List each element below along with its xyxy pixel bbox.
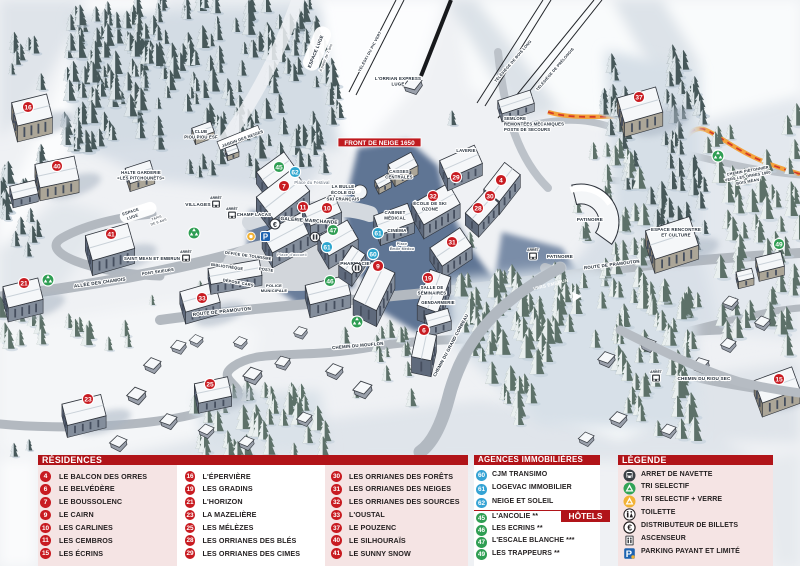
svg-text:Place d'accueil: Place d'accueil xyxy=(277,252,307,257)
svg-text:FRONT DE NEIGE 1650: FRONT DE NEIGE 1650 xyxy=(344,140,415,147)
svg-text:41: 41 xyxy=(107,231,115,238)
svg-text:31: 31 xyxy=(448,239,456,246)
svg-text:REMONTÉES MÉCANIQUES: REMONTÉES MÉCANIQUES xyxy=(504,121,564,126)
svg-text:25: 25 xyxy=(206,381,214,388)
svg-text:VILLAGES: VILLAGES xyxy=(185,202,211,208)
svg-text:32: 32 xyxy=(429,193,437,200)
svg-text:61: 61 xyxy=(374,230,382,237)
svg-text:SEMLORE: SEMLORE xyxy=(504,116,526,121)
svg-text:SÉMINAIRES: SÉMINAIRES xyxy=(418,291,447,296)
svg-text:MÉDICAL: MÉDICAL xyxy=(384,216,406,221)
svg-text:CINÉMA: CINÉMA xyxy=(387,226,407,233)
svg-text:16: 16 xyxy=(24,104,32,111)
svg-text:ARRÊT: ARRÊT xyxy=(180,249,193,254)
svg-text:PIOU PIOU ESF: PIOU PIOU ESF xyxy=(184,134,218,139)
svg-text:PATINOIRE: PATINOIRE xyxy=(577,217,603,222)
svg-text:Place: Place xyxy=(397,242,407,246)
svg-text:7: 7 xyxy=(282,183,286,190)
svg-text:CAISSES: CAISSES xyxy=(389,169,409,174)
svg-text:30: 30 xyxy=(486,193,494,200)
svg-text:15: 15 xyxy=(775,376,783,383)
svg-text:23: 23 xyxy=(84,396,92,403)
svg-text:47: 47 xyxy=(329,227,337,234)
svg-text:62: 62 xyxy=(291,169,299,176)
svg-text:Émile Médou: Émile Médou xyxy=(390,246,414,251)
svg-text:ÉCOLE DE SKI: ÉCOLE DE SKI xyxy=(413,201,446,206)
svg-text:CHEMIN DU RIOU SEC: CHEMIN DU RIOU SEC xyxy=(677,376,731,381)
svg-text:60: 60 xyxy=(369,251,377,258)
svg-text:49: 49 xyxy=(775,241,783,248)
svg-text:ÉCOLE DU: ÉCOLE DU xyxy=(331,190,355,195)
svg-text:ESPACE RENCONTRE: ESPACE RENCONTRE xyxy=(651,227,701,232)
svg-text:33: 33 xyxy=(198,295,206,302)
svg-text:ARRÊT: ARRÊT xyxy=(210,195,223,200)
svg-text:CLUB: CLUB xyxy=(195,129,207,134)
svg-text:29: 29 xyxy=(452,174,460,181)
svg-text:P: P xyxy=(625,548,631,559)
svg-text:SAINT MEAN ET EMBRUN: SAINT MEAN ET EMBRUN xyxy=(124,256,180,261)
svg-text:ARRÊT: ARRÊT xyxy=(527,247,540,252)
svg-text:SALLE DE: SALLE DE xyxy=(421,285,444,290)
svg-text:Place du Festival: Place du Festival xyxy=(294,180,329,185)
svg-text:LA BULLE: LA BULLE xyxy=(332,184,355,189)
svg-text:LUGE: LUGE xyxy=(392,82,405,87)
svg-text:45: 45 xyxy=(275,164,283,171)
svg-text:SKI FRANÇAIS: SKI FRANÇAIS xyxy=(327,196,360,201)
svg-text:40: 40 xyxy=(53,163,61,170)
svg-text:ARRÊT: ARRÊT xyxy=(226,206,239,211)
svg-text:28: 28 xyxy=(474,205,482,212)
svg-text:MUNICIPALE: MUNICIPALE xyxy=(261,288,288,293)
svg-text:PATINOIRE: PATINOIRE xyxy=(547,254,573,259)
svg-text:CABINET: CABINET xyxy=(385,210,406,215)
svg-text:€: € xyxy=(627,522,632,532)
svg-text:OZONE: OZONE xyxy=(422,207,439,212)
svg-text:POSTE DE SECOURS: POSTE DE SECOURS xyxy=(504,127,550,132)
svg-text:4: 4 xyxy=(499,177,503,184)
svg-text:37: 37 xyxy=(635,94,643,101)
svg-text:10: 10 xyxy=(323,205,331,212)
svg-text:ET CULTURE: ET CULTURE xyxy=(661,233,690,238)
svg-text:«LES PITCHOUNETS»: «LES PITCHOUNETS» xyxy=(117,175,165,180)
svg-text:CHAMP LACAS: CHAMP LACAS xyxy=(237,212,272,217)
svg-text:19: 19 xyxy=(424,275,432,282)
svg-text:HALTE GARDERIE: HALTE GARDERIE xyxy=(121,170,161,175)
svg-text:11: 11 xyxy=(300,204,307,211)
svg-text:ARRÊT: ARRÊT xyxy=(650,369,663,374)
svg-text:61: 61 xyxy=(323,244,331,251)
svg-text:46: 46 xyxy=(326,278,334,285)
svg-text:9: 9 xyxy=(376,263,380,270)
svg-text:21: 21 xyxy=(20,280,28,287)
svg-text:6: 6 xyxy=(422,327,426,334)
svg-text:L'ORRIAN EXPRESS: L'ORRIAN EXPRESS xyxy=(375,76,421,81)
svg-text:GENDARMERIE: GENDARMERIE xyxy=(421,300,455,305)
svg-text:€: € xyxy=(273,222,277,229)
svg-text:LAVERIE: LAVERIE xyxy=(456,148,475,153)
svg-text:CENTRALES: CENTRALES xyxy=(385,174,412,179)
svg-text:P: P xyxy=(263,233,268,242)
